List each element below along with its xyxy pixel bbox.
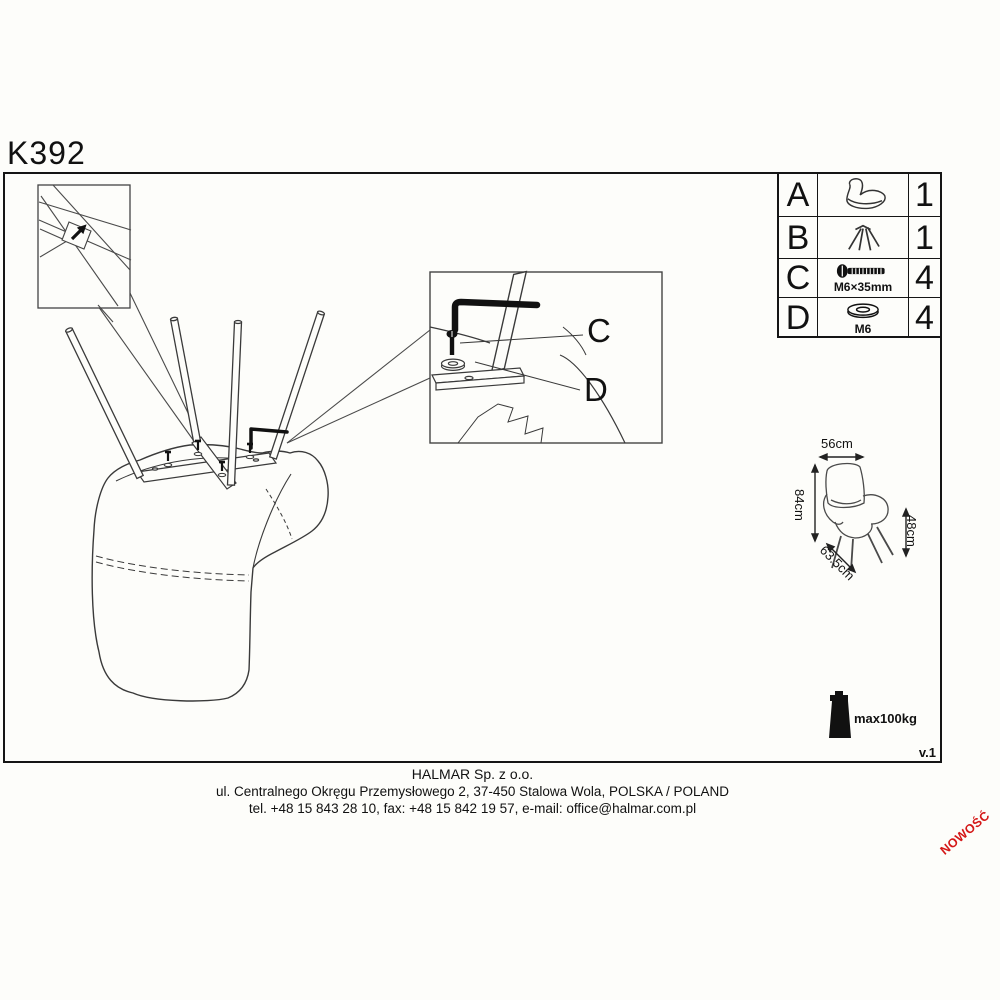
chair-shell-icon <box>833 176 893 214</box>
part-spec: M6×35mm <box>834 281 892 294</box>
part-qty: 1 <box>909 217 940 258</box>
company-name: HALMAR Sp. z o.o. <box>3 766 942 783</box>
page-title: K392 <box>7 135 86 172</box>
company-address: ul. Centralnego Okręgu Przemysłowego 2, … <box>3 783 942 800</box>
new-badge: NOWOŚĆ <box>937 808 993 859</box>
part-spec: M6 <box>855 323 872 336</box>
part-qty: 4 <box>909 259 940 297</box>
parts-row-d: D M6 4 <box>779 298 940 336</box>
part-qty: 4 <box>909 298 940 338</box>
parts-table: A 1 B 1 <box>777 172 942 338</box>
company-contact: tel. +48 15 843 28 10, fax: +48 15 842 1… <box>3 800 942 817</box>
parts-row-a: A 1 <box>779 174 940 217</box>
part-letter: A <box>779 174 818 216</box>
parts-row-b: B 1 <box>779 217 940 259</box>
part-letter: D <box>779 298 818 338</box>
part-letter: B <box>779 217 818 258</box>
version-label: v.1 <box>919 745 936 760</box>
footer: HALMAR Sp. z o.o. ul. Centralnego Okręgu… <box>3 766 942 817</box>
part-qty: 1 <box>909 174 940 216</box>
washer-icon <box>838 300 888 322</box>
parts-row-c: C M6×35mm 4 <box>779 259 940 298</box>
part-letter: C <box>779 259 818 297</box>
screw-icon <box>830 262 896 280</box>
chair-legs-icon <box>833 221 893 255</box>
